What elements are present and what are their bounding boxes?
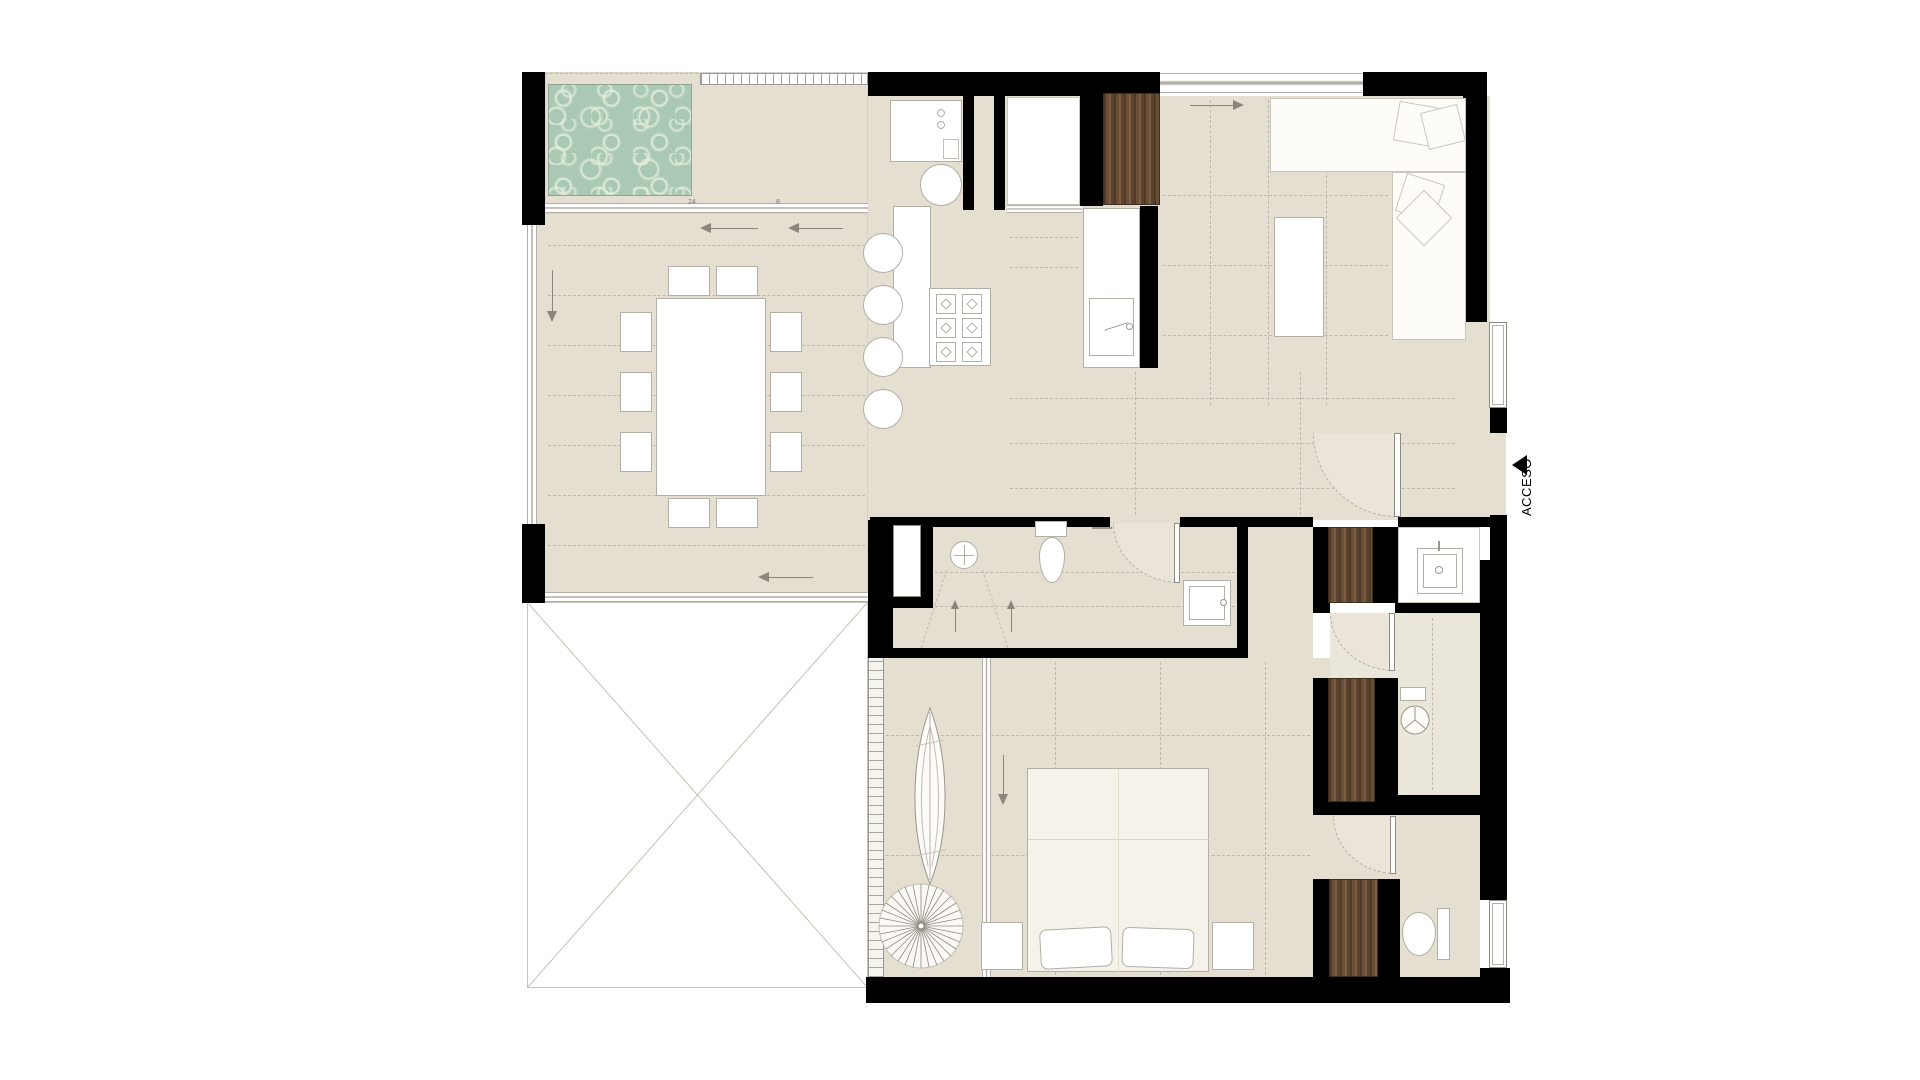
wall-segment: [1480, 795, 1507, 900]
refrigerator: [890, 100, 962, 162]
right-wall-window: [1489, 900, 1507, 968]
nightstand: [1212, 922, 1254, 970]
access-label-text: ACCESO: [1519, 458, 1534, 516]
faucet: [1126, 323, 1133, 330]
toilet-tank: [1035, 521, 1067, 537]
dimension-mark-kitchen-track: 8: [776, 199, 780, 206]
floor-joint-line: [1135, 372, 1136, 515]
burner: [962, 342, 982, 362]
dining-chair: [770, 372, 802, 412]
wall-segment: [522, 72, 545, 225]
dining-chair: [668, 498, 710, 528]
wall-segment: [1480, 560, 1507, 795]
floor-plan-canvas: 24 8: [0, 0, 1920, 1080]
wall-segment: [1373, 527, 1398, 603]
terrace-sliding-door-track: [545, 592, 868, 602]
wall-segment: [1490, 408, 1507, 433]
wall-segment: [1247, 517, 1313, 527]
pergola-louver-strip: [700, 73, 868, 85]
wall-segment: [1237, 517, 1248, 658]
dining-chair: [668, 266, 710, 296]
nightstand: [981, 922, 1023, 970]
burner: [936, 342, 956, 362]
wc-room-door-leaf: [1390, 816, 1396, 874]
bathroom-right-basin: [1417, 548, 1463, 594]
cooktop: [929, 288, 991, 366]
wall-segment: [870, 648, 1248, 658]
entry-threshold: [1490, 433, 1506, 515]
faucet: [1220, 599, 1227, 606]
coffee-table: [1274, 217, 1324, 337]
dining-chair: [770, 312, 802, 352]
floor-joint-line: [935, 572, 1235, 573]
burner: [962, 294, 982, 314]
garage-cross-lines: [528, 603, 867, 987]
floor-joint-line: [1265, 662, 1266, 975]
palm-tree-top: [878, 883, 964, 969]
floor-joint-line: [1210, 100, 1211, 405]
floor-joint-line: [1268, 100, 1269, 405]
floor-joint-line: [1300, 372, 1301, 515]
arrow-left: [758, 571, 813, 583]
wall-segment: [1463, 96, 1487, 322]
leaf-plant: [898, 706, 962, 886]
floor-joint-line: [548, 545, 865, 546]
arrow-left: [700, 222, 758, 234]
floor-joint-line: [1010, 237, 1078, 238]
arrow-right: [1190, 99, 1244, 111]
appliance-knob: [937, 121, 945, 129]
dimension-mark-pool-track: 24: [688, 199, 696, 206]
wardrobe-wc-room: [1329, 879, 1378, 977]
wall-segment: [994, 96, 1005, 210]
dining-table: [656, 298, 766, 496]
arrow-left: [788, 222, 843, 234]
floor-joint-line: [1010, 267, 1078, 268]
floor-joint-line: [548, 245, 865, 246]
towel-bar: [1092, 527, 1112, 529]
arrow-up: [950, 600, 960, 632]
kitchen-round-sink: [920, 164, 962, 206]
wall-segment: [1140, 206, 1158, 368]
blanket-center-line: [1118, 769, 1119, 973]
floor-joint-line: [1010, 398, 1455, 399]
entry-door-leaf: [1394, 433, 1401, 517]
wall-segment: [1395, 603, 1490, 613]
wall-segment: [522, 524, 545, 603]
wall-segment: [1363, 72, 1487, 96]
garage-terrace: [527, 602, 868, 988]
swimming-pool: [548, 84, 692, 196]
arrow-up: [1006, 600, 1016, 632]
wardrobe-shower-room: [1328, 678, 1375, 802]
pedestal-basin: [950, 541, 978, 569]
arrow-down: [546, 270, 558, 322]
access-label: ACCESO: [1532, 420, 1550, 516]
wall-segment: [1375, 678, 1398, 802]
shower-niche: [1400, 687, 1426, 701]
pantry-sliding-track: [1007, 205, 1082, 213]
hall-to-bedroom-floor: [1247, 520, 1313, 658]
bar-stool: [863, 233, 903, 273]
washbasin-counter: [1183, 580, 1231, 626]
wall-segment: [1080, 96, 1103, 206]
right-wall-window: [1489, 322, 1507, 408]
bar-stool: [863, 285, 903, 325]
dining-chair: [620, 312, 652, 352]
appliance-knob: [937, 109, 945, 117]
wall-segment: [1313, 678, 1328, 802]
wall-segment: [1313, 879, 1329, 977]
wc-toilet-tank: [1437, 908, 1450, 960]
living-top-window: [1160, 73, 1363, 93]
blanket-fold-line: [1028, 839, 1210, 840]
bed-pillow: [1039, 926, 1113, 970]
pantry-room: [1007, 97, 1080, 205]
faucet: [1435, 566, 1443, 574]
floor-joint-line: [1432, 618, 1433, 790]
appliance-detail: [943, 139, 959, 159]
deck-sliding-door-track: [545, 203, 868, 213]
wall-segment: [1490, 515, 1507, 560]
dining-chair: [716, 498, 758, 528]
wall-segment: [1480, 968, 1510, 980]
basin-cross: [954, 555, 974, 556]
floor-joint-line: [1163, 195, 1388, 196]
bar-stool: [863, 337, 903, 377]
terrace-glass-wall: [527, 225, 537, 524]
shower-drain: [1399, 704, 1431, 736]
dining-chair: [770, 432, 802, 472]
bar-stool: [863, 389, 903, 429]
wall-segment: [1398, 517, 1490, 527]
burner: [936, 318, 956, 338]
wardrobe-hall: [1328, 527, 1373, 603]
wall-segment: [1378, 879, 1400, 977]
faucet-supply: [1438, 541, 1440, 551]
kitchen-sink: [1089, 298, 1134, 356]
bed-pillow: [1121, 927, 1194, 969]
dining-chair: [620, 372, 652, 412]
dining-chair: [716, 266, 758, 296]
shower-tray: [893, 525, 921, 597]
wall-segment: [866, 977, 1510, 1003]
wall-segment: [1313, 603, 1330, 613]
wardrobe-top: [1103, 93, 1160, 205]
shower-room-door-leaf: [1389, 613, 1395, 671]
bathroom-door-leaf: [1174, 523, 1180, 583]
wall-segment: [1313, 527, 1328, 603]
wall-segment: [963, 96, 974, 210]
faucet-spout: [1104, 322, 1127, 330]
arrow-down: [997, 755, 1009, 805]
burner: [962, 318, 982, 338]
burner: [936, 294, 956, 314]
dining-chair: [620, 432, 652, 472]
